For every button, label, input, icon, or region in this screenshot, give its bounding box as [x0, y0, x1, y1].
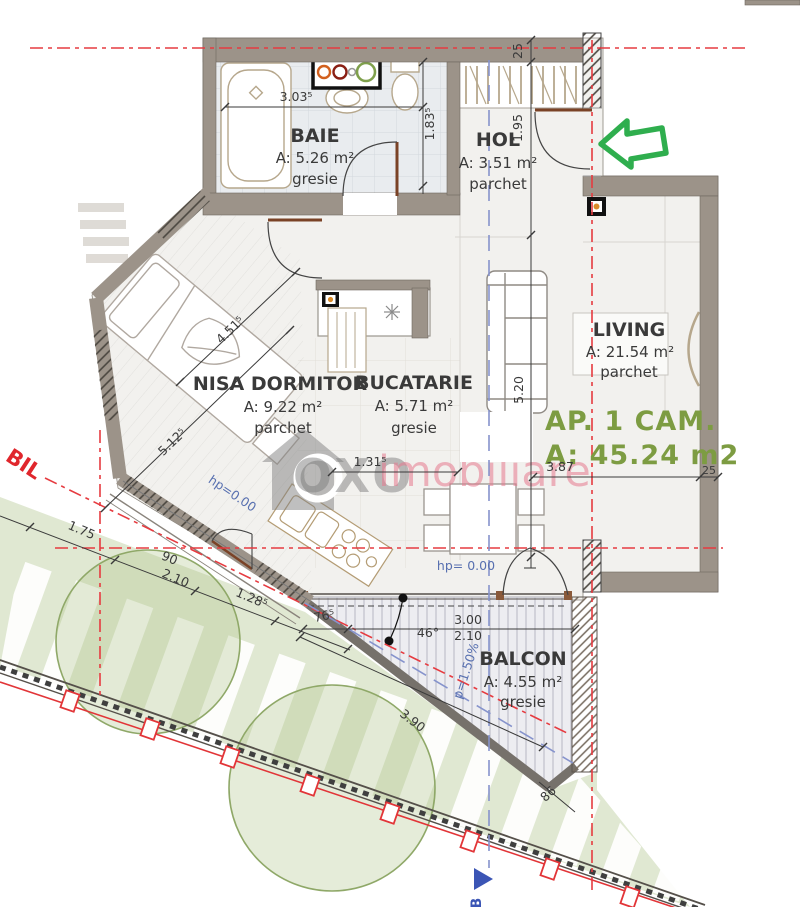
wardrobe	[458, 62, 583, 108]
level-hol: hp= 0.00	[437, 558, 495, 573]
extractor-icon	[384, 304, 400, 320]
room-area-living: A: 21.54 m²	[586, 343, 674, 361]
wall-top	[203, 38, 583, 62]
dim-balcon-2: 3.00	[454, 612, 482, 627]
wall-baie-bottom	[203, 193, 460, 215]
coffee-table-patch	[460, 412, 533, 462]
room-area-baie: A: 5.26 m²	[276, 149, 355, 167]
room-area-hol: A: 3.51 m²	[459, 154, 538, 172]
dim-balcon-3: 2.10	[454, 628, 482, 643]
room-floor-dormitor: parchet	[254, 419, 312, 437]
room-label-balcon: BALCON	[479, 648, 566, 670]
dim-wall-right: 25	[702, 464, 716, 477]
wall-baie-hol	[447, 62, 460, 195]
wall-living-right	[700, 196, 718, 592]
room-floor-living: parchet	[600, 363, 658, 381]
tree-canopy	[56, 550, 240, 734]
section-letter: B	[469, 898, 485, 907]
dim-balcon-angle: 46°	[417, 625, 439, 640]
dim-living-width: 3.87	[546, 459, 574, 474]
chair	[424, 525, 450, 551]
room-label-bucatarie: BUCATARIE	[355, 372, 473, 394]
dim-baie-width: 3.03⁵	[280, 89, 313, 104]
wall-kitchen-stub	[412, 288, 428, 338]
wall-living-top	[583, 176, 718, 196]
room-floor-balcon: gresie	[500, 693, 546, 711]
dim-hol-depth: 1.95	[510, 114, 525, 142]
room-label-living: LIVING	[593, 319, 665, 341]
dim-living-depth: 5.20	[511, 376, 526, 404]
entrance-arrow-icon	[601, 121, 666, 167]
wall-top-right-fragment	[745, 0, 800, 5]
wall-living-bottom	[601, 572, 718, 592]
room-label-baie: BAIE	[290, 125, 339, 147]
wall-baie-left	[203, 38, 216, 196]
room-floor-bucatarie: gresie	[391, 419, 437, 437]
room-area-dormitor: A: 9.22 m²	[244, 398, 323, 416]
room-area-bucatarie: A: 5.71 m²	[375, 397, 454, 415]
fridge	[328, 308, 366, 372]
floor-plan-page: OXO imobiliare B	[0, 0, 800, 907]
axis-label: BIL	[2, 444, 46, 484]
room-floor-baie: gresie	[292, 170, 338, 188]
apartment-title: AP. 1 CAM.	[545, 406, 716, 437]
dim-wall-top: 25	[510, 43, 525, 59]
dim-baie-depth: 1.83⁵	[422, 108, 437, 141]
toilet-bowl	[392, 74, 418, 110]
floor-plan-drawing: OXO imobiliare B	[0, 0, 800, 907]
exterior-steps	[78, 203, 129, 263]
room-floor-hol: parchet	[469, 175, 527, 193]
balcon-side-wall	[572, 597, 597, 772]
dim-bucatarie-width: 1.31⁵	[354, 454, 387, 469]
room-label-dormitor: NISA DORMITOR	[193, 373, 368, 395]
room-area-balcon: A: 4.55 m²	[484, 673, 563, 691]
section-arrow	[474, 868, 493, 890]
